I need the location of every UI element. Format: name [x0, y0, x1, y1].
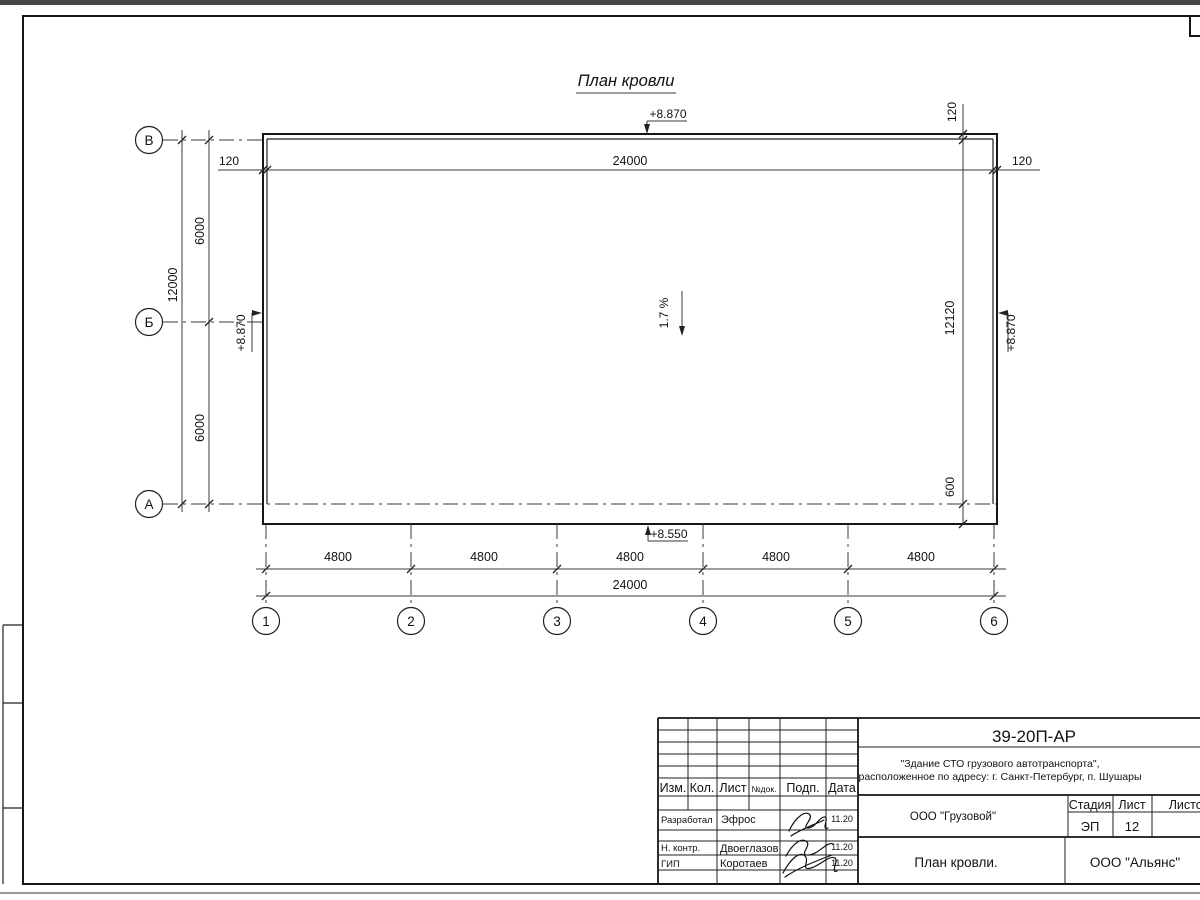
dim-bottom-segment-2: 4800 [470, 550, 498, 564]
axis-grid-lines [163, 140, 997, 607]
axis-label-2: 2 [407, 614, 415, 629]
axis-label-1: 1 [262, 614, 270, 629]
elevation-bottom-value: +8.550 [650, 527, 687, 541]
frame-left-margin-boxes [3, 625, 23, 884]
drawing-title: План кровли [578, 72, 675, 90]
col-header-data: Дата [828, 781, 856, 795]
axis-label-v: В [144, 133, 153, 148]
elevation-top-value: +8.870 [649, 107, 686, 121]
object-description-line1: "Здание СТО грузового автотранспорта", [900, 758, 1099, 770]
stage-label: Стадия [1069, 798, 1112, 812]
scan-top-strip [0, 0, 1200, 5]
elevation-mark-bottom: +8.550 [645, 525, 688, 541]
axis-bubbles-rows: В Б А [136, 127, 163, 518]
slope-annotation: 1.7 % [657, 291, 685, 336]
col-header-podp: Подп. [786, 781, 819, 795]
axis-bubbles-cols: 1 2 3 4 5 6 [253, 608, 1008, 635]
axis-label-6: 6 [990, 614, 998, 629]
dim-bottom-segment-5: 4800 [907, 550, 935, 564]
dim-right-bottom-offset: 600 [943, 477, 957, 497]
dim-left-overall: 12000 [166, 268, 180, 303]
col-header-ndok: №док. [752, 784, 777, 794]
row-role-gip: ГИП [661, 859, 680, 870]
dim-top-left-offset: 120 [219, 154, 239, 168]
sheet-label: Лист [1118, 798, 1145, 812]
axis-label-5: 5 [844, 614, 852, 629]
axis-label-b: Б [145, 315, 154, 330]
frame-topright-box [1190, 16, 1200, 36]
title-block: 39-20П-АР "Здание СТО грузового автотран… [658, 718, 1200, 884]
dim-left-segment-1: 6000 [193, 217, 207, 245]
row-date-developer: 11.20 [831, 814, 853, 824]
dim-bottom-overall: 24000 [613, 578, 648, 592]
sheet-value: 12 [1125, 819, 1139, 834]
dim-bottom-segment-1: 4800 [324, 550, 352, 564]
dim-left-segment-2: 6000 [193, 414, 207, 442]
col-header-kol: Кол. [690, 781, 715, 795]
dim-top-overall: 24000 [613, 154, 648, 168]
elevation-mark-top: +8.870 [644, 107, 687, 134]
dim-right-overall: 12120 [943, 301, 957, 336]
sheets-label: Листов [1169, 798, 1200, 812]
elevation-mark-right: +8.870 [998, 310, 1018, 352]
dim-bottom-segment-4: 4800 [762, 550, 790, 564]
org-name: ООО "Альянс" [1090, 855, 1180, 870]
object-description-line2: расположенное по адресу: г. Санкт-Петерб… [859, 771, 1142, 783]
roof-outer-edge [263, 134, 997, 524]
stage-value: ЭП [1081, 819, 1100, 834]
elevation-right-value: +8.870 [1004, 314, 1018, 351]
row-role-ncontrol: Н. контр. [661, 843, 700, 854]
row-name-developer: Эфрос [721, 814, 756, 826]
dim-top-right-offset: 120 [1012, 154, 1032, 168]
col-header-list: Лист [719, 781, 746, 795]
row-date-ncontrol: 11.20 [831, 842, 853, 852]
dim-right-top-offset: 120 [945, 102, 959, 122]
signature-developer [789, 813, 828, 836]
sheet-frame [23, 16, 1200, 884]
dimension-ticks [178, 130, 1001, 600]
sheet-title: План кровли. [914, 855, 997, 870]
row-name-gip: Коротаев [720, 858, 768, 870]
doc-number: 39-20П-АР [992, 727, 1076, 746]
elevation-mark-left: +8.870 [234, 310, 262, 352]
roof-plan-sheet: План кровли 120 24000 [0, 0, 1200, 900]
axis-label-4: 4 [699, 614, 707, 629]
roof-outline [263, 134, 997, 524]
dimension-lines [182, 104, 1040, 596]
axis-label-a: А [144, 497, 153, 512]
elevation-left-value: +8.870 [234, 314, 248, 351]
slope-label: 1.7 % [657, 297, 671, 328]
col-header-izm: Изм. [660, 781, 687, 795]
row-role-developer: Разработал [661, 815, 713, 826]
company-name: ООО "Грузовой" [910, 811, 996, 823]
dim-bottom-segment-3: 4800 [616, 550, 644, 564]
row-name-ncontrol: Двоеглазов [720, 843, 779, 855]
axis-label-3: 3 [553, 614, 561, 629]
signature-ncontrol-gip [783, 840, 837, 877]
